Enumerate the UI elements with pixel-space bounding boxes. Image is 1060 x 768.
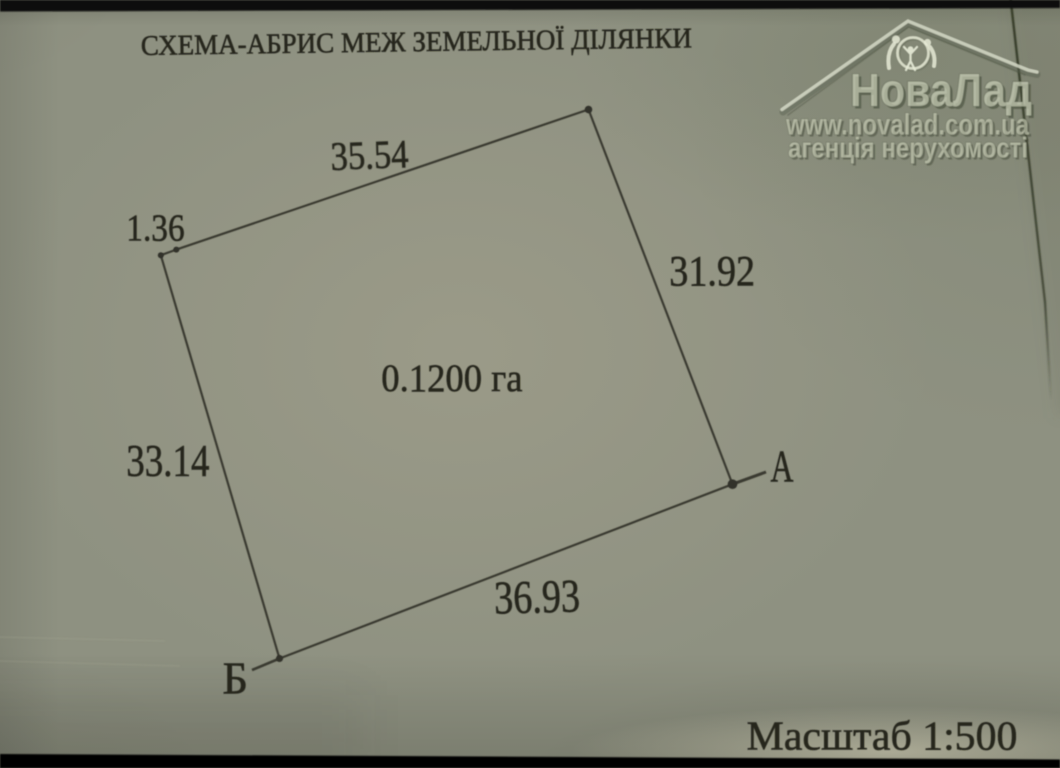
svg-text:СХЕМА-АБРИС МЕЖ ЗЕМЕЛЬНОЇ ДІЛЯ: СХЕМА-АБРИС МЕЖ ЗЕМЕЛЬНОЇ ДІЛЯНКИ <box>141 23 692 62</box>
svg-text:агенція нерухомості: агенція нерухомості <box>788 132 1028 164</box>
svg-text:35.54: 35.54 <box>330 131 410 179</box>
svg-text:36.93: 36.93 <box>493 570 580 624</box>
svg-text:33.14: 33.14 <box>126 435 209 486</box>
svg-text:1.36: 1.36 <box>126 208 184 250</box>
svg-text:Б: Б <box>223 654 249 704</box>
svg-text:А: А <box>771 442 794 492</box>
svg-text:31.92: 31.92 <box>669 248 755 295</box>
svg-text:Масштаб 1:500: Масштаб 1:500 <box>747 713 1018 759</box>
svg-text:0.1200 га: 0.1200 га <box>381 357 522 400</box>
